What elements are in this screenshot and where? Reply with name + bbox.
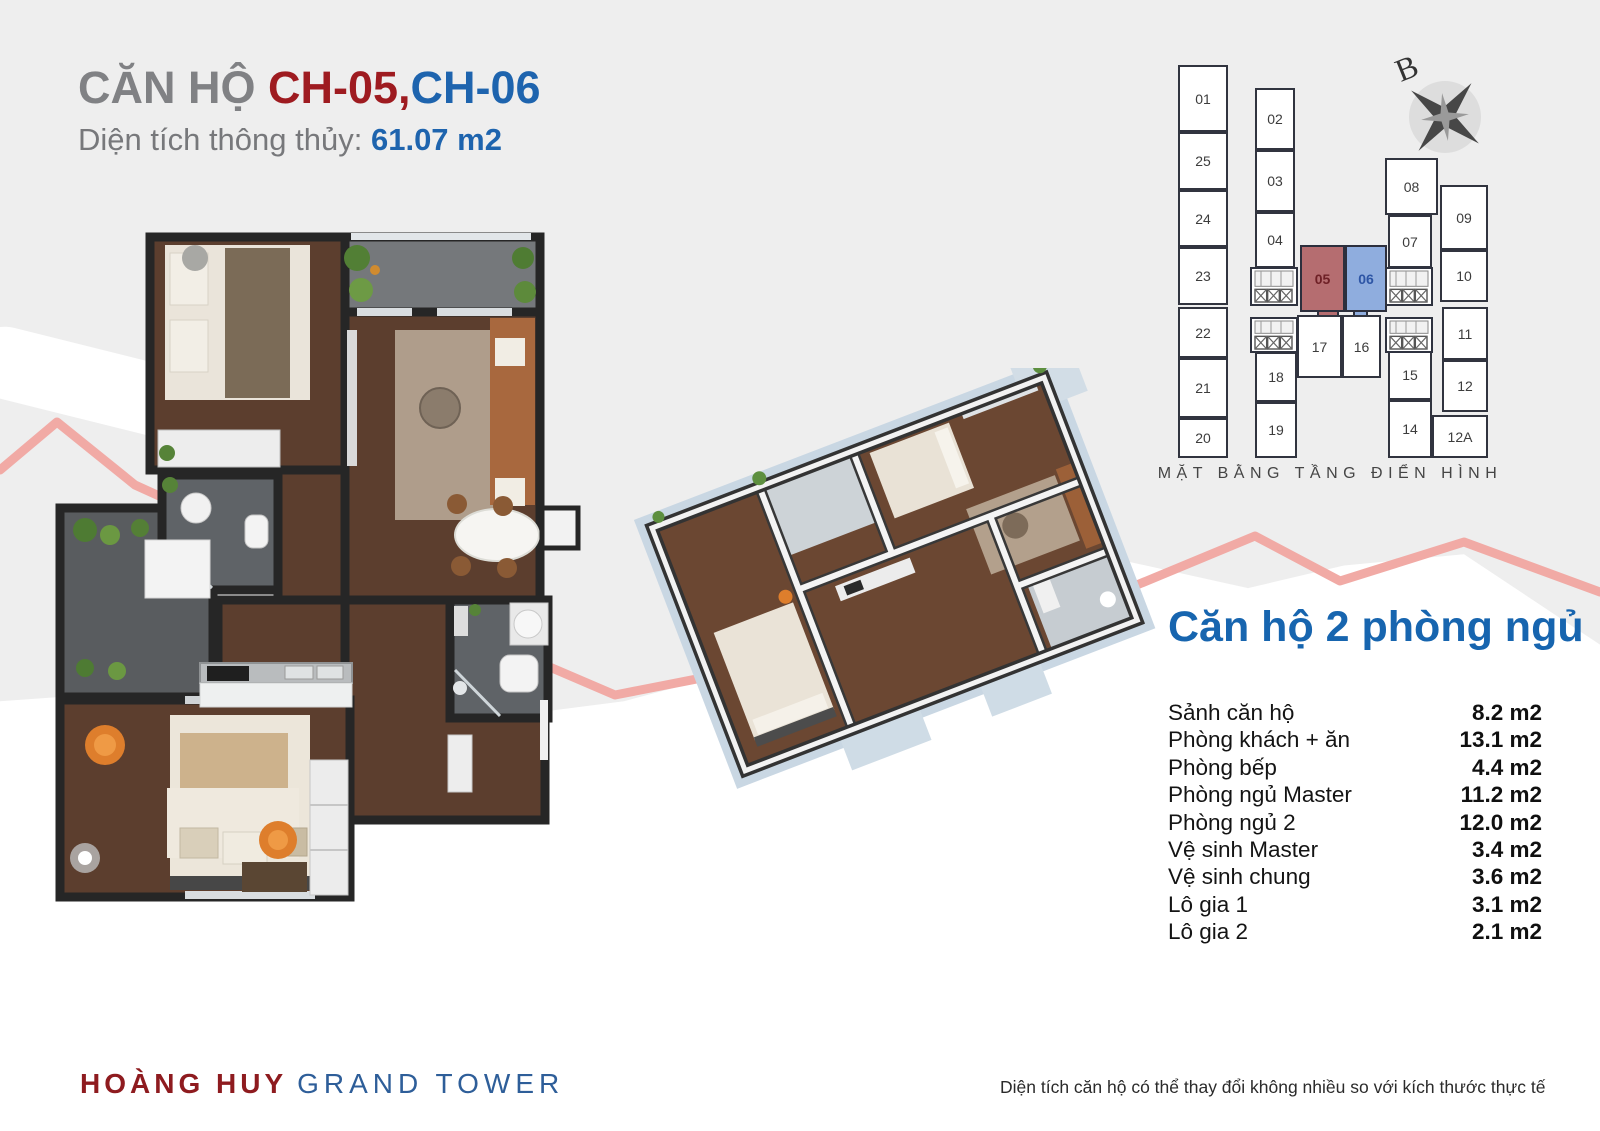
room-row: Sảnh căn hộ8.2 m2	[1168, 700, 1542, 727]
key-plan-unit-01: 01	[1178, 65, 1228, 132]
page-subtitle: Diện tích thông thủy: 61.07 m2	[78, 120, 541, 160]
key-plan-unit-17: 17	[1297, 315, 1342, 378]
room-row: Vệ sinh Master3.4 m2	[1168, 837, 1542, 864]
disclaimer-text: Diện tích căn hộ có thể thay đổi không n…	[1000, 1077, 1460, 1098]
room-area-value: 3.1 m2	[1472, 892, 1542, 918]
room-label: Phòng khách + ăn	[1168, 727, 1350, 753]
key-plan-unit-02: 02	[1255, 88, 1295, 150]
key-plan-unit-19: 19	[1255, 402, 1297, 458]
room-row: Phòng ngủ 212.0 m2	[1168, 810, 1542, 837]
room-row: Phòng khách + ăn13.1 m2	[1168, 727, 1542, 754]
room-area-value: 13.1 m2	[1459, 727, 1542, 753]
key-plan-unit-07: 07	[1388, 215, 1432, 268]
brochure-page: { "page": { "title_prefix": "CĂN HỘ ", "…	[0, 0, 1600, 1131]
brand-secondary: GRAND TOWER	[297, 1068, 564, 1099]
kitchen-counter	[200, 663, 352, 707]
room-label: Phòng ngủ Master	[1168, 782, 1352, 808]
room-label: Lô gia 2	[1168, 919, 1248, 945]
key-plan: 0125242322212002030418190506171608071514…	[1155, 55, 1505, 500]
room-row: Lô gia 22.1 m2	[1168, 919, 1542, 946]
room-table: Sảnh căn hộ8.2 m2Phòng khách + ăn13.1 m2…	[1168, 700, 1542, 947]
room-row: Vệ sinh chung3.6 m2	[1168, 864, 1542, 891]
key-plan-unit-11: 11	[1442, 307, 1488, 360]
key-plan-unit-10: 10	[1440, 250, 1488, 302]
room-area-value: 4.4 m2	[1472, 755, 1542, 781]
key-plan-unit-16: 16	[1342, 315, 1381, 378]
key-plan-unit-23: 23	[1178, 247, 1228, 305]
room-area-value: 2.1 m2	[1472, 919, 1542, 945]
room-area-value: 8.2 m2	[1472, 700, 1542, 726]
key-plan-unit-14: 14	[1388, 400, 1432, 458]
key-plan-unit-20: 20	[1178, 418, 1228, 458]
room-row: Phòng bếp4.4 m2	[1168, 755, 1542, 782]
room-area-value: 11.2 m2	[1461, 782, 1542, 808]
key-plan-unit-22: 22	[1178, 307, 1228, 358]
room-label: Lô gia 1	[1168, 892, 1248, 918]
brand-logo: HOÀNG HUYGRAND TOWER	[80, 1068, 564, 1100]
brand-primary: HOÀNG HUY	[80, 1068, 287, 1099]
room-row: Phòng ngủ Master11.2 m2	[1168, 782, 1542, 809]
room-area-value: 12.0 m2	[1459, 810, 1542, 836]
key-plan-unit-24: 24	[1178, 190, 1228, 247]
compass-icon: B	[1383, 47, 1503, 177]
floor-plan-3d	[592, 368, 1157, 883]
title-prefix: CĂN HỘ	[78, 62, 268, 113]
subtitle-label: Diện tích thông thủy:	[78, 122, 371, 157]
key-plan-unit-05: 05	[1300, 245, 1345, 312]
floor-plan-2d	[45, 228, 590, 1018]
key-plan-unit-21: 21	[1178, 358, 1228, 418]
compass-north-label: B	[1390, 47, 1423, 88]
room-area-value: 3.4 m2	[1472, 837, 1542, 863]
title-unit-ch05: CH-05,	[268, 62, 411, 113]
header: CĂN HỘ CH-05,CH-06 Diện tích thông thủy:…	[78, 62, 541, 160]
key-plan-unit-15: 15	[1388, 350, 1432, 400]
key-plan-unit-03: 03	[1255, 150, 1295, 212]
room-area-value: 3.6 m2	[1472, 864, 1542, 890]
key-plan-unit-09: 09	[1440, 185, 1488, 250]
key-plan-unit-18: 18	[1255, 352, 1297, 402]
room-label: Phòng ngủ 2	[1168, 810, 1296, 836]
room-label: Vệ sinh Master	[1168, 837, 1318, 863]
room-row: Lô gia 13.1 m2	[1168, 892, 1542, 919]
room-label: Phòng bếp	[1168, 755, 1277, 781]
key-plan-caption: MẶT BẰNG TẦNG ĐIỂN HÌNH	[1155, 465, 1505, 483]
subtitle-value: 61.07 m2	[371, 122, 502, 157]
key-plan-unit-25: 25	[1178, 132, 1228, 190]
key-plan-unit-12A: 12A	[1432, 415, 1488, 458]
title-unit-ch06: CH-06	[411, 62, 541, 113]
room-label: Sảnh căn hộ	[1168, 700, 1294, 726]
key-plan-unit-06: 06	[1345, 245, 1387, 312]
key-plan-unit-12: 12	[1442, 360, 1488, 412]
summary-heading: Căn hộ 2 phòng ngủ	[1168, 603, 1544, 652]
hall-cabinet	[448, 735, 472, 792]
room-label: Vệ sinh chung	[1168, 864, 1311, 890]
key-plan-unit-04: 04	[1255, 212, 1295, 268]
page-title: CĂN HỘ CH-05,CH-06	[78, 62, 541, 114]
side-ledge	[542, 508, 578, 548]
